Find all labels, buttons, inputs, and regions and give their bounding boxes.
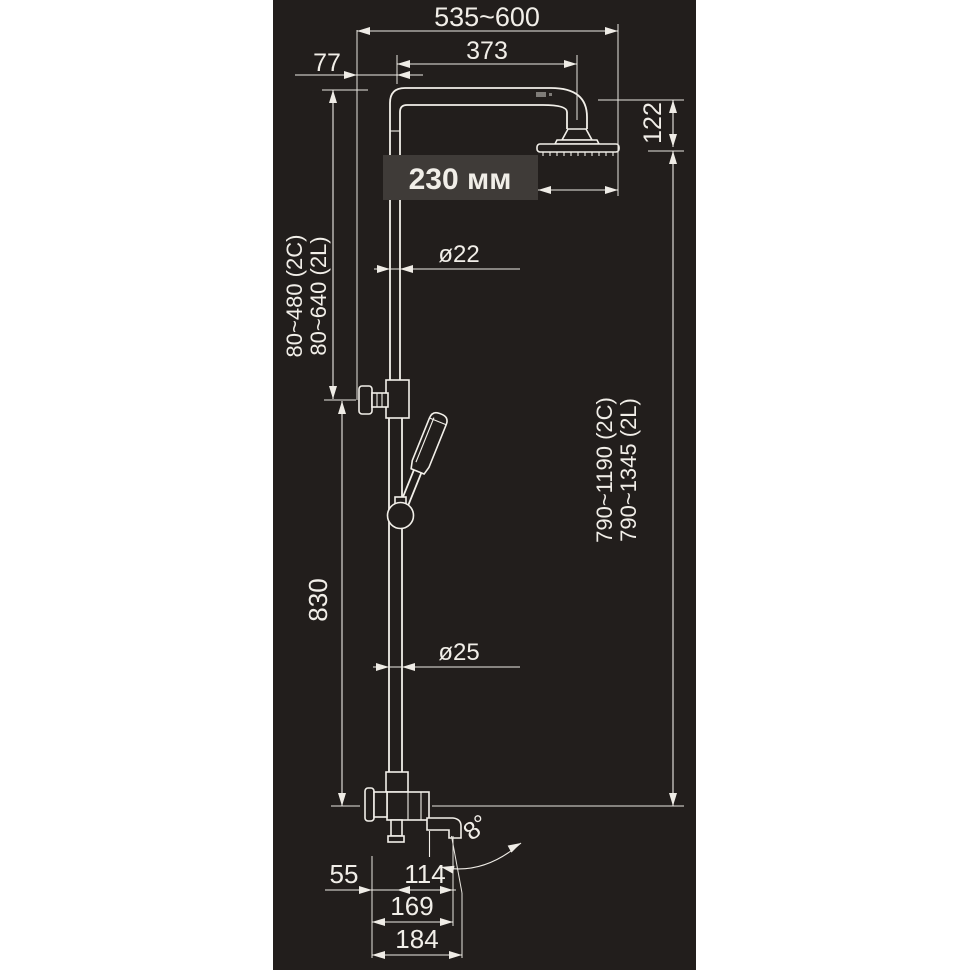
dim-column-height-2c: 790~1190 (2C) xyxy=(592,397,617,543)
dim-lower-column-height: 830 xyxy=(303,578,333,621)
mixer-collar xyxy=(386,772,408,792)
dim-arm-length: 373 xyxy=(466,37,508,65)
dim-slider-range-2l: 80~640 (2L) xyxy=(306,236,331,355)
head-diameter-label: 230 мм xyxy=(409,163,512,196)
shower-column-technical-drawing: 230 мм 535~600 373 77 122 790~1190 (2C) … xyxy=(0,0,970,970)
dim-riser-lower-diameter: ø25 xyxy=(438,639,479,666)
mixer-under-tube xyxy=(391,820,402,836)
dim-slider-range-2c: 80~480 (2C) xyxy=(282,235,307,358)
dim-spout-reach-total: 169 xyxy=(390,891,433,921)
slider-sleeve xyxy=(386,380,409,418)
mixer-knob-drum xyxy=(374,792,387,817)
dim-column-height-2l: 790~1345 (2L) xyxy=(616,398,641,542)
dim-spout-reach-overall: 184 xyxy=(395,924,438,954)
holder-ring xyxy=(388,503,414,529)
mixer-foot xyxy=(388,836,404,842)
slider-knob-neck xyxy=(372,393,388,407)
dim-wall-offset-top: 77 xyxy=(313,49,341,77)
slider-knob xyxy=(359,386,372,414)
arm-logo-mark xyxy=(536,92,546,97)
dim-spout-wall-offset: 55 xyxy=(330,859,359,889)
head-plate xyxy=(537,144,619,152)
head-nut xyxy=(562,129,592,140)
dim-spout-reach: 114 xyxy=(404,859,445,889)
dim-head-drop: 122 xyxy=(639,102,667,144)
dim-riser-upper-diameter: ø22 xyxy=(438,241,479,268)
mixer-knob-disc xyxy=(365,788,374,821)
arm-logo-dot xyxy=(549,93,552,96)
screenshot-canvas: 230 мм 535~600 373 77 122 790~1190 (2C) … xyxy=(0,0,970,970)
dim-overall-width: 535~600 xyxy=(434,2,540,32)
